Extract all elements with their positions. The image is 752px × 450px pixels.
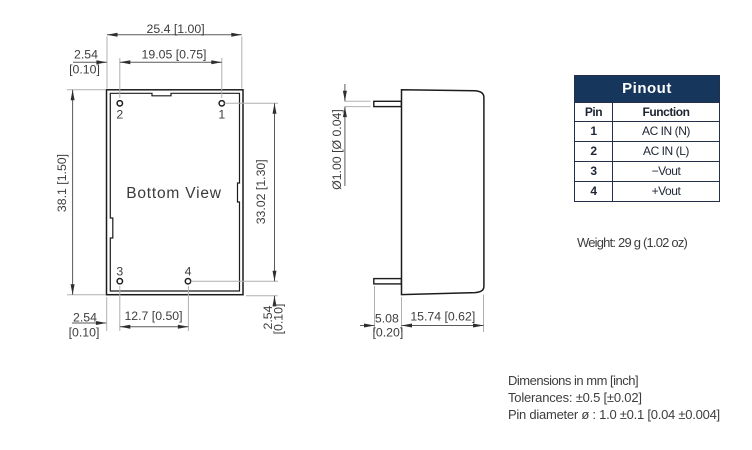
svg-text:25.4 [1.00]: 25.4 [1.00] [147, 22, 205, 36]
svg-text:[0.10]: [0.10] [272, 304, 286, 335]
svg-text:12.7 [0.50]: 12.7 [0.50] [124, 309, 182, 323]
svg-text:2.54: 2.54 [74, 48, 98, 62]
svg-text:Bottom View: Bottom View [126, 185, 222, 202]
svg-text:33.02 [1.30]: 33.02 [1.30] [254, 159, 268, 224]
svg-text:Ø1.00 [Ø 0.04]: Ø1.00 [Ø 0.04] [330, 109, 344, 190]
svg-text:19.05 [0.75]: 19.05 [0.75] [142, 48, 207, 62]
svg-text:4: 4 [185, 265, 192, 279]
svg-text:1: 1 [218, 107, 225, 121]
svg-text:2: 2 [116, 107, 123, 121]
svg-text:38.1 [1.50]: 38.1 [1.50] [55, 154, 69, 212]
svg-text:[0.20]: [0.20] [373, 326, 404, 340]
svg-text:3: 3 [116, 265, 123, 279]
svg-text:[0.10]: [0.10] [69, 326, 100, 340]
svg-text:[0.10]: [0.10] [69, 63, 100, 77]
svg-text:5.08: 5.08 [375, 312, 399, 326]
svg-text:2.54: 2.54 [73, 311, 97, 325]
svg-text:15.74 [0.62]: 15.74 [0.62] [410, 310, 475, 324]
